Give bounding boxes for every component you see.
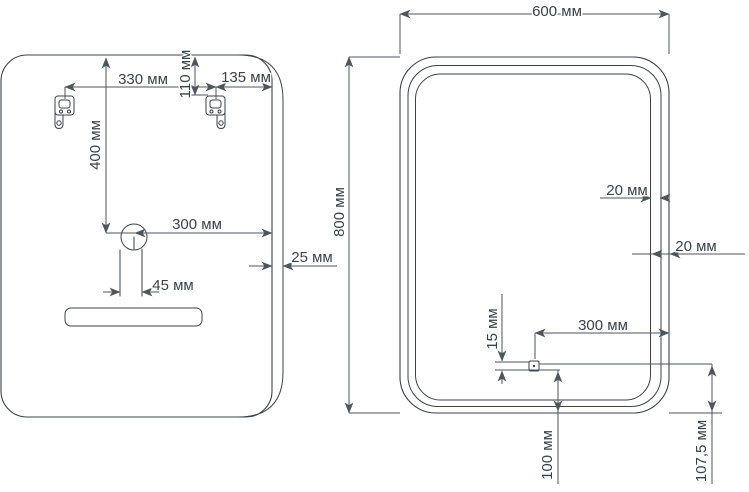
dim-label-bracket-spacing: 330 мм <box>118 71 168 88</box>
dim-bracket-to-edge: 135 мм <box>216 69 272 87</box>
dim-label-led-edge-offset: 20 мм <box>675 238 716 255</box>
dim-label-bracket-to-edge: 135 мм <box>221 69 271 86</box>
led-band-inner-line <box>416 74 651 400</box>
mirror-dimension-diagram: 330 мм 135 мм 110 мм 400 мм 300 мм <box>0 0 749 492</box>
dim-label-led-strip-width: 20 мм <box>606 182 647 199</box>
dim-sensor-center-from-bottom: 107,5 мм <box>669 364 722 484</box>
dim-led-strip-width: 20 мм <box>600 182 668 199</box>
dim-width: 600 мм <box>400 3 669 54</box>
technical-drawing: 330 мм 135 мм 110 мм 400 мм 300 мм <box>0 0 749 492</box>
dim-thickness: 25 мм <box>249 249 337 266</box>
junction-box-window <box>65 308 202 326</box>
dim-height: 800 мм <box>331 57 400 413</box>
mounting-bracket-left-icon <box>55 96 74 129</box>
dim-cable-outlet-width: 45 мм <box>103 277 194 294</box>
dim-label-sensor-center-from-bottom: 107,5 мм <box>693 420 710 482</box>
dim-label-hole-from-top: 400 мм <box>87 120 104 170</box>
dim-sensor-to-right-edge: 300 мм <box>535 317 669 359</box>
dim-hole-from-top: 400 мм <box>87 58 106 233</box>
mounting-bracket-right-icon <box>206 96 225 129</box>
dim-label-hole-to-right-edge: 300 мм <box>172 216 222 233</box>
dim-sensor-from-bottom: 100 мм <box>539 370 558 484</box>
dim-label-height: 800 мм <box>331 187 348 237</box>
mirror-back-panel <box>1 55 272 417</box>
front-view: 600 мм 800 мм 20 мм 20 мм <box>331 3 745 484</box>
dim-label-cable-outlet-width: 45 мм <box>152 277 193 294</box>
dim-brackets-from-top: 110 мм <box>177 50 208 99</box>
dim-label-thickness: 25 мм <box>291 249 332 266</box>
back-view: 330 мм 135 мм 110 мм 400 мм 300 мм <box>1 50 337 417</box>
dim-label-sensor-to-right-edge: 300 мм <box>578 317 628 334</box>
dim-led-edge-offset: 20 мм <box>632 238 745 255</box>
dim-label-width: 600 мм <box>532 3 582 20</box>
mirror-side-face <box>238 55 283 417</box>
dim-label-sensor-height: 15 мм <box>484 308 501 349</box>
mirror-outer-edge <box>400 57 669 413</box>
dim-label-sensor-from-bottom: 100 мм <box>539 430 556 480</box>
dim-label-brackets-from-top: 110 мм <box>177 50 194 99</box>
